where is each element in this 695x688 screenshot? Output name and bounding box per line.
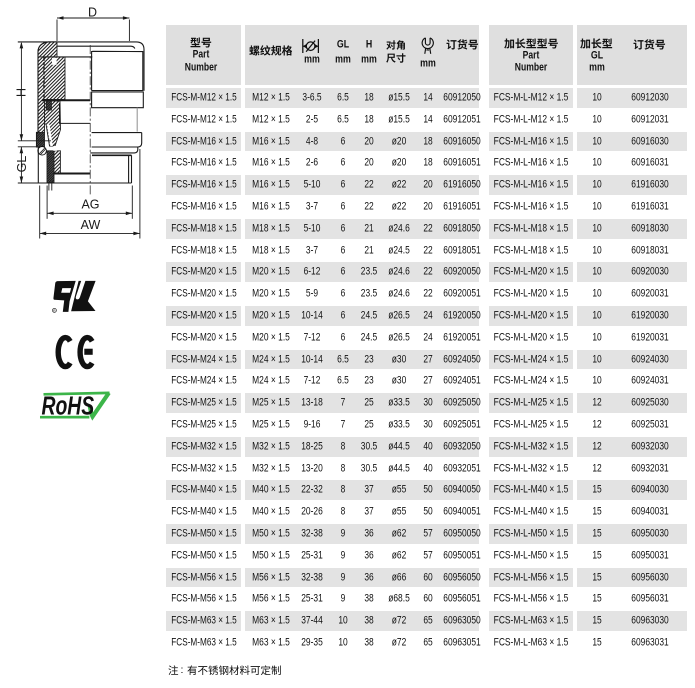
svg-text:AW: AW: [81, 218, 101, 232]
svg-text:AG: AG: [81, 198, 99, 212]
svg-text:D: D: [88, 6, 97, 20]
svg-text:H: H: [14, 88, 28, 97]
svg-text:RoHS: RoHS: [41, 392, 94, 420]
svg-text:GL: GL: [15, 156, 29, 173]
svg-text:R: R: [53, 309, 56, 313]
